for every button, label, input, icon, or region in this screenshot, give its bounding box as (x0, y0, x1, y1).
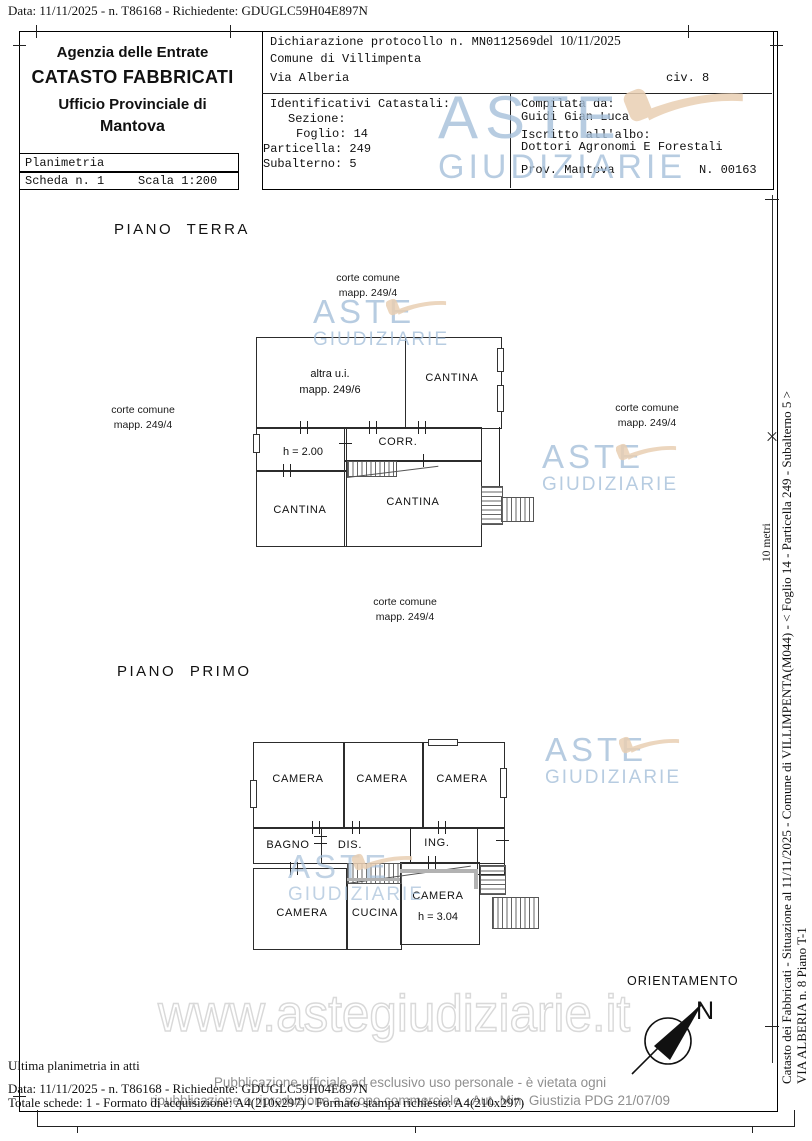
terra-label-cantina-3: CANTINA (373, 496, 453, 508)
wall-tick (425, 421, 426, 434)
scheda-label: Scheda n. 1 (25, 174, 104, 188)
subalterno-field: Subalterno: 5 (263, 157, 357, 171)
protocol-line: Dichiarazione protocollo n. MN0112569del… (270, 33, 621, 49)
primo-label-camera-1: CAMERA (258, 773, 338, 785)
wall-tick (314, 836, 327, 837)
request-info-line: Data: 11/11/2025 - n. T86168 - Richieden… (8, 3, 368, 19)
registration-tick (13, 45, 26, 46)
side-caption-line2: VIA ALBERIA n. 8 Piano T-1 (794, 148, 809, 1084)
office-city: Mantova (25, 118, 240, 136)
foglio-field: Foglio: 14 (296, 127, 368, 141)
wall-tick (435, 856, 436, 869)
wall-tick (307, 421, 308, 434)
corte-comune-label-right: corte comune mapp. 249/4 (592, 401, 702, 431)
wall-tick (423, 454, 424, 467)
bottom-frame-line (37, 1126, 795, 1127)
scale-tick (765, 1026, 779, 1027)
scale-length-label: 10 metri (761, 492, 773, 562)
piano-primo-title: PIANO PRIMO (117, 663, 252, 680)
gray-wall-segment (474, 869, 478, 889)
fold-tick (415, 1126, 416, 1133)
planimetria-page: Data: 11/11/2025 - n. T86168 - Richieden… (0, 0, 812, 1141)
wall-tick (339, 443, 352, 444)
wall-tick (376, 421, 377, 434)
planimetria-label: Planimetria (25, 156, 104, 170)
scala-label: Scala 1:200 (138, 174, 217, 188)
terra-label-corr: CORR. (368, 436, 428, 448)
office-line: Ufficio Provinciale di (25, 96, 240, 113)
primo-room-camera-2 (344, 742, 423, 829)
gavel-icon (386, 297, 448, 319)
orientation-label: ORIENTAMENTO (627, 974, 739, 988)
primo-label-camera-4: CAMERA (262, 907, 342, 919)
altra-ui-line1: altra u.i. (280, 366, 380, 382)
corte-line1: corte comune (313, 271, 423, 286)
corte-line1: corte comune (350, 595, 460, 610)
corte-line2: mapp. 249/4 (88, 418, 198, 433)
corte-line2: mapp. 249/4 (592, 416, 702, 431)
wall-tick (283, 464, 284, 477)
primo-label-camera-2: CAMERA (342, 773, 422, 785)
particella-field: Particella: 249 (263, 142, 371, 156)
window-mark (497, 348, 504, 372)
side-caption-line1: Catasto dei Fabbricati - Situazione al 1… (779, 148, 794, 1084)
gavel-icon (623, 86, 748, 128)
ultima-planimetria-note: Ultima planimetria in atti (8, 1058, 140, 1074)
scale-line (772, 195, 773, 1063)
north-label: N (696, 997, 714, 1026)
wall-tick (290, 464, 291, 477)
primo-label-height: h = 3.04 (398, 911, 478, 923)
window-mark (497, 385, 504, 412)
watermark-giudiziarie-text: GIUDIZIARIE (438, 150, 686, 184)
fold-tick (77, 1126, 78, 1133)
terra-external-stairs-upper (481, 486, 503, 525)
albo-number: N. 00163 (699, 163, 757, 177)
terra-label-cantina-1: CANTINA (412, 372, 492, 384)
wall-tick (445, 821, 446, 834)
identificativi-title: Identificativi Catastali: (270, 97, 450, 111)
watermark-giudiziarie-text: GIUDIZIARIE (288, 885, 424, 904)
gavel-icon (619, 735, 681, 757)
gavel-icon (616, 442, 678, 464)
protocol-date: del 10/11/2025 (536, 33, 620, 48)
civ-number: civ. 8 (666, 71, 709, 85)
sezione-field: Sezione: (288, 112, 346, 126)
footer-totale-line: Totale schede: 1 - Formato di acquisizio… (8, 1095, 524, 1111)
registration-tick (688, 25, 689, 38)
corte-line1: corte comune (592, 401, 702, 416)
terra-label-altra-ui: altra u.i. mapp. 249/6 (280, 366, 380, 398)
primo-room-camera-1 (253, 742, 344, 829)
primo-external-stairs-upper (480, 865, 506, 895)
wall-tick (312, 821, 313, 834)
piano-terra-title: PIANO TERRA (114, 221, 250, 238)
corte-line2: mapp. 249/4 (350, 610, 460, 625)
gavel-icon (352, 852, 414, 874)
wall-tick (300, 421, 301, 434)
primo-room-camera-3 (423, 742, 505, 829)
wall-tick (319, 821, 320, 834)
registration-tick (36, 25, 37, 38)
wall-tick (496, 840, 509, 841)
corte-comune-label-bottom: corte comune mapp. 249/4 (350, 595, 460, 625)
agency-name: Agenzia delle Entrate (25, 44, 240, 61)
scale-tick (765, 199, 779, 200)
primo-label-ing: ING. (407, 837, 467, 849)
wall-tick (418, 421, 419, 434)
watermark-giudiziarie-text: GIUDIZIARIE (542, 475, 678, 494)
window-mark (250, 780, 257, 808)
agency-block: Agenzia delle Entrate CATASTO FABBRICATI… (25, 44, 240, 136)
window-mark (253, 434, 260, 453)
registration-tick (770, 45, 783, 46)
registration-tick (230, 25, 231, 38)
wall-tick (369, 421, 370, 434)
wall-tick (428, 856, 429, 869)
primo-label-camera-3: CAMERA (422, 773, 502, 785)
watermark-giudiziarie-text: GIUDIZIARIE (545, 768, 681, 787)
astegiudiziarie-site-watermark: www.astegiudiziarie.it (158, 984, 630, 1044)
comune-line: Comune di Villimpenta (270, 52, 421, 66)
protocol-text: Dichiarazione protocollo n. MN0112569 (270, 35, 536, 49)
altra-ui-line2: mapp. 249/6 (280, 382, 380, 398)
watermark-giudiziarie-text: GIUDIZIARIE (313, 330, 449, 349)
terra-right-wall (499, 427, 500, 486)
wall-tick (352, 821, 353, 834)
corte-line1: corte comune (88, 403, 198, 418)
terra-external-stairs-lower (501, 497, 534, 522)
fold-tick (752, 1126, 753, 1133)
catasto-title: CATASTO FABBRICATI (25, 67, 240, 88)
bottom-frame-stub (794, 1110, 795, 1126)
wall-tick (359, 821, 360, 834)
terra-label-height: h = 2.00 (263, 446, 343, 458)
primo-external-stairs-lower (492, 897, 539, 929)
side-caption: Catasto dei Fabbricati - Situazione al 1… (779, 148, 809, 1084)
wall-tick (438, 821, 439, 834)
window-mark (428, 739, 458, 746)
bottom-frame-stub (37, 1110, 38, 1126)
terra-label-cantina-2: CANTINA (260, 504, 340, 516)
corte-comune-label-left: corte comune mapp. 249/4 (88, 403, 198, 433)
via-line: Via Alberia (270, 71, 349, 85)
